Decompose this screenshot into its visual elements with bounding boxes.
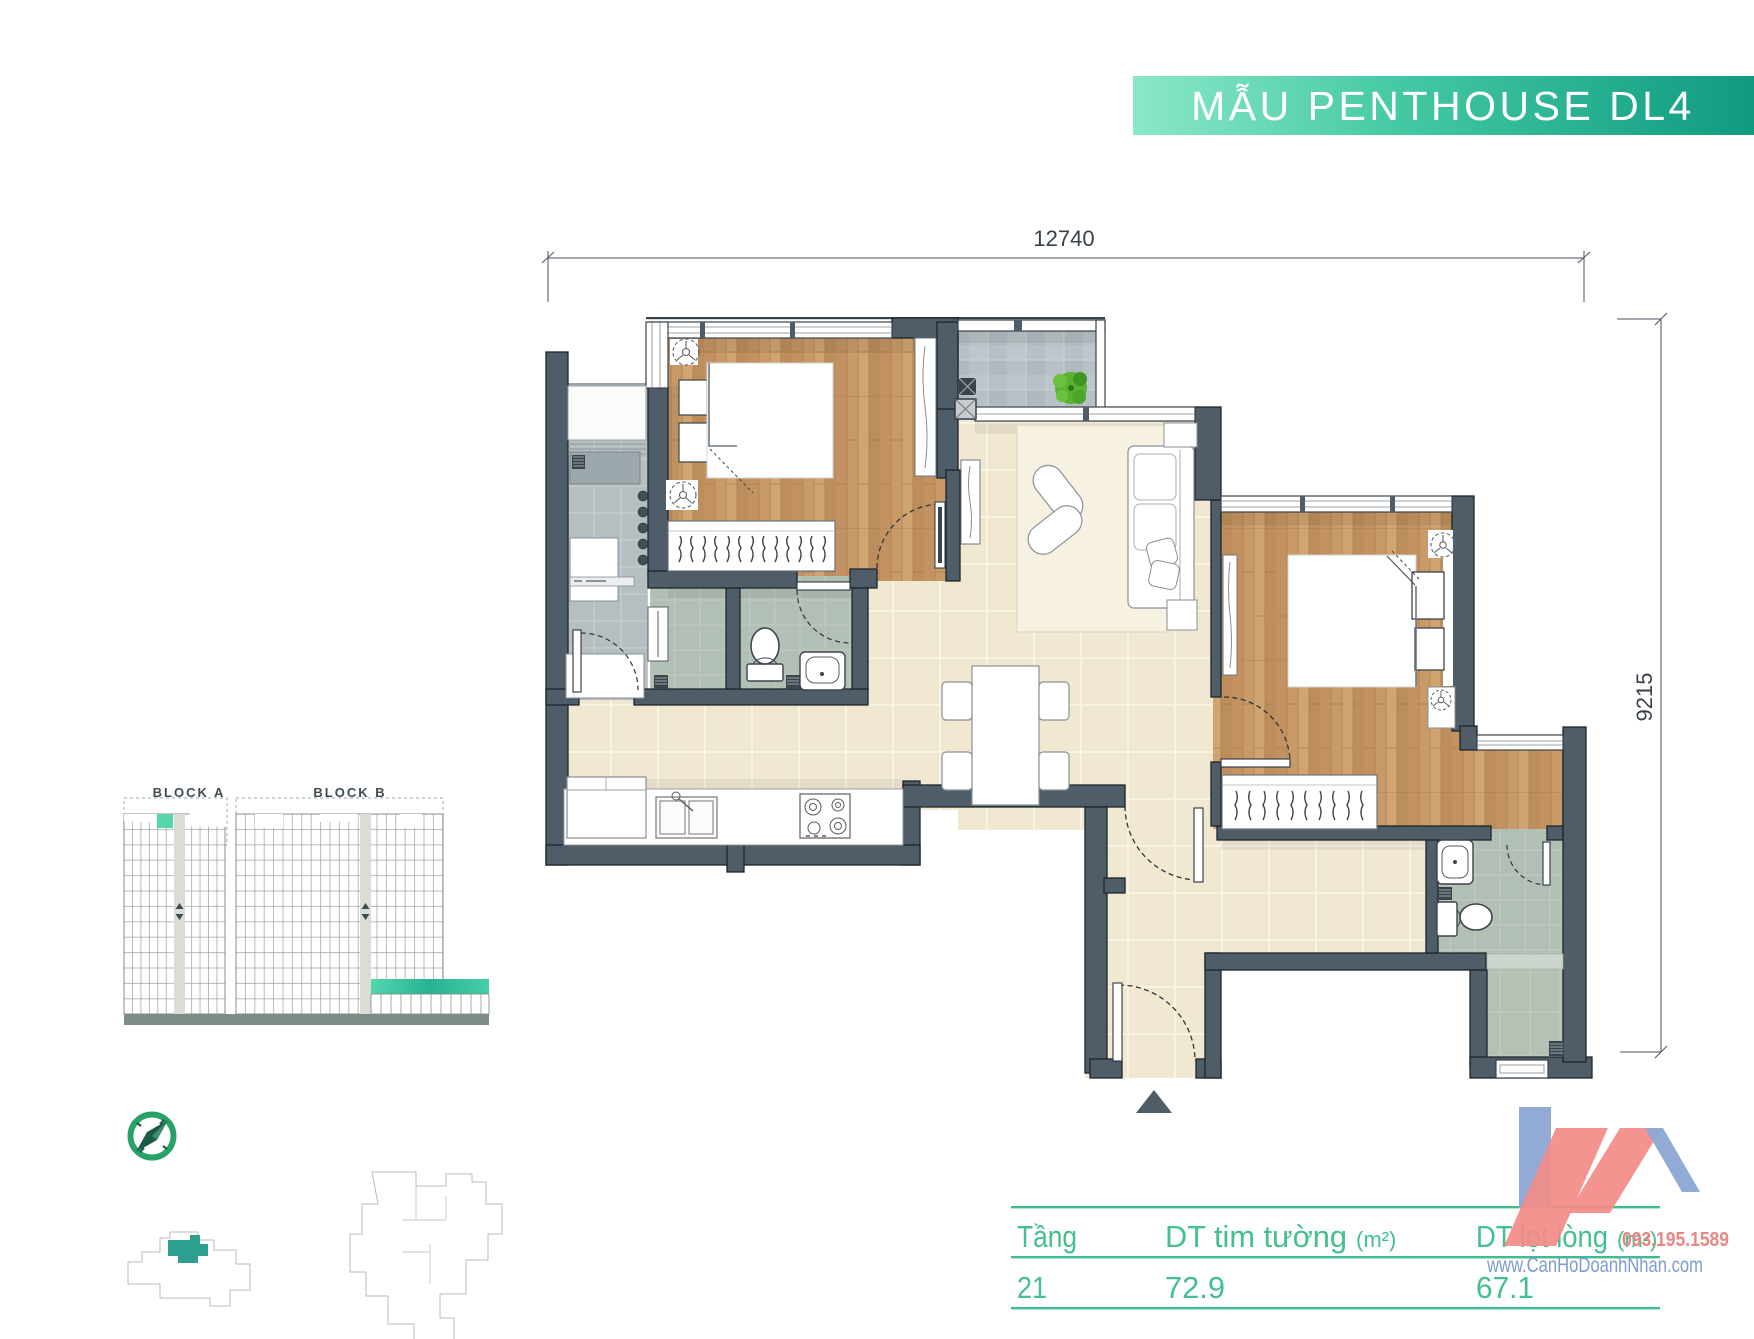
svg-text:9215: 9215	[1632, 673, 1657, 722]
svg-text:DT tim tường: DT tim tường	[1165, 1219, 1347, 1254]
svg-text:Tầng: Tầng	[1017, 1219, 1077, 1254]
svg-text:(m²): (m²)	[1356, 1227, 1396, 1252]
svg-text:093.195.1589: 093.195.1589	[1622, 1229, 1729, 1251]
svg-text:www.CanHoDoanhNhan.com: www.CanHoDoanhNhan.com	[1486, 1254, 1703, 1277]
svg-text:MẪU PENTHOUSE DL4: MẪU PENTHOUSE DL4	[1191, 83, 1695, 129]
svg-text:21: 21	[1017, 1270, 1047, 1305]
svg-text:72.9: 72.9	[1165, 1270, 1225, 1305]
svg-text:12740: 12740	[1033, 226, 1094, 251]
